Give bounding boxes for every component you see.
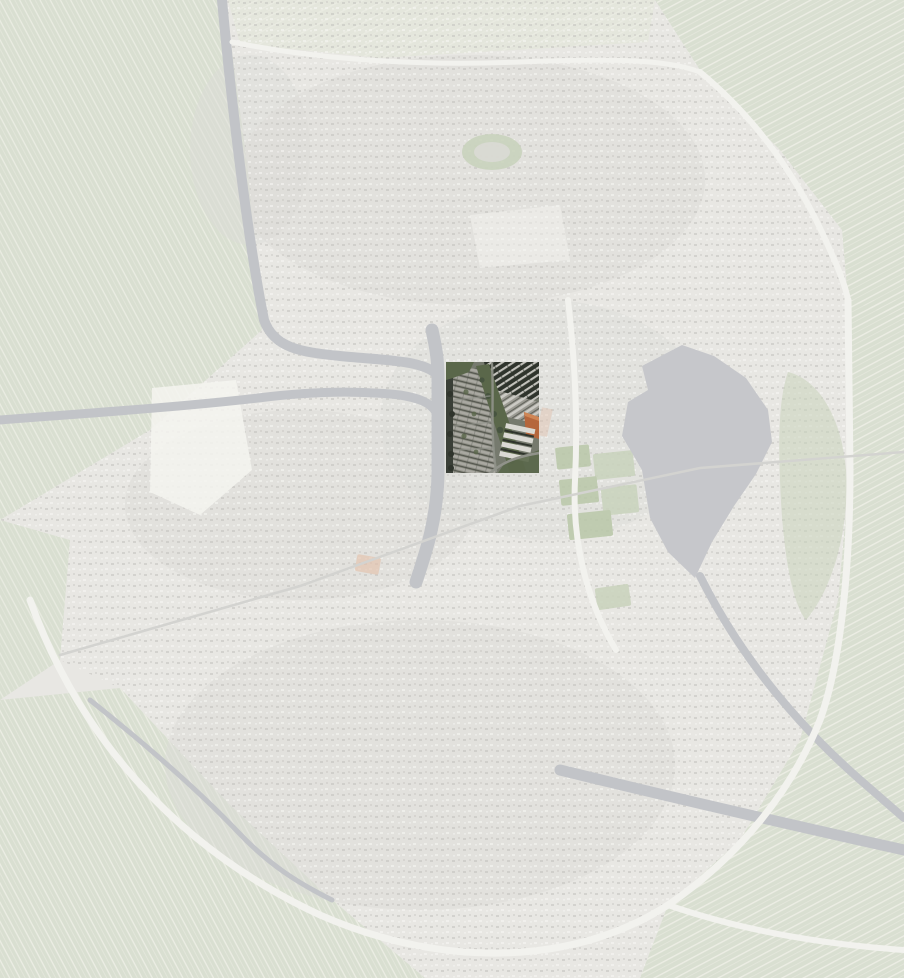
light-roof-patch (470, 205, 570, 268)
faded-aerial-basemap (0, 0, 904, 978)
aerial-map-viewport[interactable] (0, 0, 904, 978)
highlighted-map-tile[interactable] (446, 362, 539, 473)
